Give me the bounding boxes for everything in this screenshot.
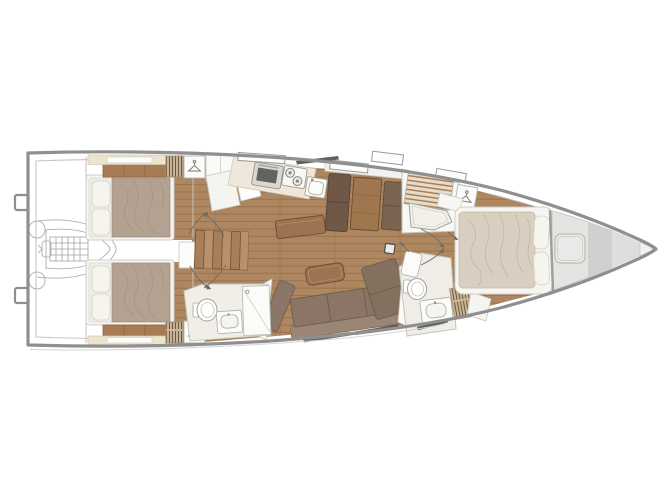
- pillow: [533, 216, 550, 250]
- hull-shelf-inset: [107, 338, 152, 344]
- hull-shelf-inset: [107, 157, 152, 163]
- stair-landing: [179, 242, 195, 268]
- pillow: [92, 209, 110, 235]
- duvet: [112, 263, 170, 322]
- yacht-floorplan-page: Sailing yacht interior deck plan, bow po…: [0, 0, 667, 500]
- hanging-wardrobe: [184, 156, 205, 178]
- shower-stall: [242, 286, 271, 336]
- headboard-shelf: [103, 164, 166, 177]
- deck-hatch: [372, 151, 404, 165]
- pillow: [92, 294, 110, 320]
- mattress-duvet: [459, 212, 535, 288]
- forepeak-hatch: [555, 234, 585, 263]
- stove: [282, 165, 308, 188]
- oven: [251, 162, 283, 189]
- transom: [15, 195, 28, 303]
- transom-step: [15, 195, 28, 210]
- dinette-table: [350, 177, 382, 231]
- pillow: [92, 266, 110, 292]
- pillow: [533, 252, 550, 286]
- transom-step: [15, 288, 28, 303]
- louvered-locker: [166, 156, 183, 177]
- washbasin-vanity: [216, 310, 242, 334]
- galley-sink: [305, 177, 328, 199]
- aft-head: [184, 284, 271, 341]
- pillow: [92, 181, 110, 207]
- floorplan-svg: Sailing yacht interior deck plan, bow po…: [0, 0, 667, 500]
- mast-base: [384, 243, 395, 254]
- duvet: [112, 178, 170, 237]
- louvered-locker: [166, 322, 183, 343]
